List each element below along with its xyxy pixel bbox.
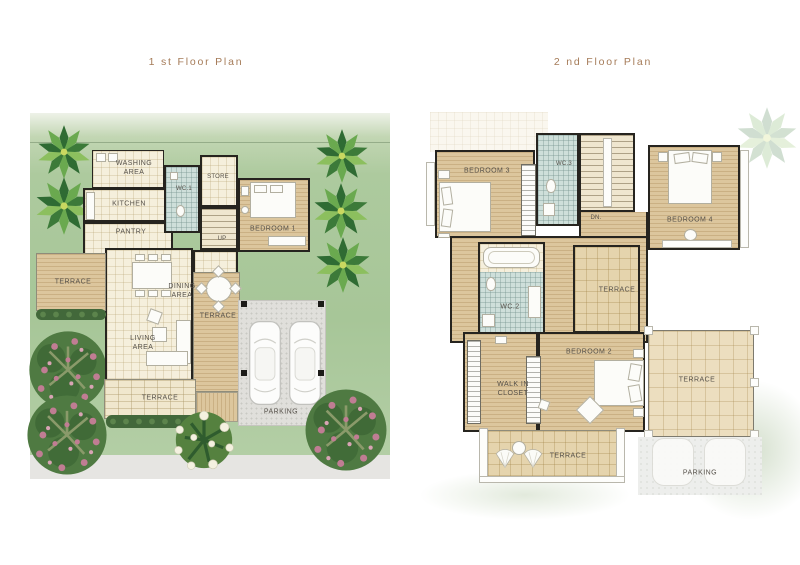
terrace-rail [616, 428, 625, 480]
nightstand-icon [241, 186, 249, 196]
chair-icon [135, 254, 145, 261]
wardrobe-icon [467, 340, 481, 424]
terrace-column [750, 326, 759, 335]
living-area-label: LIVING AREA [130, 334, 156, 352]
car-icon [247, 315, 283, 411]
pillow-icon [441, 208, 453, 227]
terrace-column [750, 378, 759, 387]
sofa-icon [146, 351, 188, 366]
chair-icon [161, 254, 171, 261]
pillow-icon [441, 186, 453, 205]
nightstand-icon [438, 170, 450, 179]
floor-plans-canvas: 1 st Floor Plan 2 nd Floor Plan [0, 0, 800, 565]
terrace-bottom2-label: TERRACE [550, 451, 587, 460]
first-floor-plan: WASHING AREA KITCHEN WC.1 STORE UP PANTR… [0, 0, 430, 565]
terrace-mid-label: TERRACE [200, 311, 237, 320]
carport-post [318, 301, 324, 307]
kitchen-label: KITCHEN [112, 199, 146, 208]
dining-area-label: DINING AREA [168, 282, 195, 300]
sink-icon [543, 203, 555, 216]
parking2-label: PARKING [683, 468, 717, 477]
tub-inner [488, 251, 535, 264]
up-label: UP [218, 236, 227, 244]
chair-icon [148, 290, 158, 297]
bench-icon [495, 336, 507, 344]
stairs-down-icon [579, 133, 635, 212]
bathtub-icon [483, 247, 540, 268]
bed-icon [668, 150, 712, 204]
flowering-tree-icon [302, 386, 390, 474]
palm-tree-icon [36, 124, 92, 180]
dining-table-icon [132, 262, 172, 289]
chair-icon [148, 254, 158, 261]
second-floor-plan: BEDROOM 3 WC.3 DN. BEDROOM 4 WC.2 TERRAC… [400, 0, 800, 565]
closet-shelf-icon [521, 164, 536, 236]
bedroom1-label: BEDROOM 1 [250, 224, 296, 233]
parking-area-2 [638, 437, 762, 495]
round-table-icon [206, 276, 232, 302]
room-wc3 [536, 133, 579, 226]
white-flower-bush-icon [172, 408, 236, 472]
pillow-icon [270, 185, 283, 193]
carport-post [318, 370, 324, 376]
walk-in-closet-label: WALK IN CLOSET [497, 380, 529, 398]
terrace-rail [479, 476, 625, 483]
car-icon [704, 438, 746, 486]
chair-icon [135, 290, 145, 297]
planter-ledge [740, 150, 749, 248]
washer-icon [96, 153, 106, 162]
palm-tree-icon [312, 182, 370, 240]
store-label: STORE [207, 174, 229, 182]
wc2-label: WC.2 [500, 302, 519, 311]
pillow-icon [691, 152, 708, 164]
wc1-label: WC.1 [176, 186, 192, 194]
nightstand-icon [438, 233, 450, 238]
flowering-tree-icon [24, 392, 110, 478]
wc3-label: WC.3 [556, 161, 572, 169]
carport-post [241, 301, 247, 307]
room-bedroom3 [435, 150, 535, 238]
pillow-icon [628, 384, 643, 403]
stool-icon [241, 206, 249, 214]
toilet-icon [546, 179, 556, 193]
terrace-rail [479, 428, 488, 480]
vanity-icon [528, 286, 541, 318]
bed-icon [250, 182, 296, 218]
window-ledge [662, 240, 732, 248]
car-icon [652, 438, 694, 486]
bed-icon [594, 360, 644, 406]
terrace-left-label: TERRACE [55, 277, 92, 286]
terrace-mid2-label: TERRACE [599, 285, 636, 294]
sink-icon [170, 172, 178, 180]
room-wc1 [164, 165, 200, 233]
stair-rail [603, 138, 612, 207]
bedroom3-label: BEDROOM 3 [464, 166, 510, 175]
washing-area-label: WASHING AREA [116, 159, 152, 177]
pantry-label: PANTRY [116, 227, 146, 236]
kitchen-counter-icon [86, 192, 95, 220]
terrace-bottom-label: TERRACE [142, 393, 179, 402]
pillow-icon [254, 185, 267, 193]
palm-tree-icon [314, 236, 372, 294]
toilet-icon [486, 277, 496, 291]
bedroom2-label: BEDROOM 2 [566, 347, 612, 356]
round-table-icon [512, 441, 526, 455]
shower-icon [482, 314, 495, 327]
hedge-icon [36, 309, 106, 320]
palm-tree-icon [314, 128, 370, 184]
pillow-icon [673, 152, 690, 164]
nightstand-icon [633, 408, 644, 417]
wardrobe-icon [268, 236, 306, 246]
toilet-icon [176, 205, 185, 217]
room-wc2 [478, 242, 545, 334]
planter-ledge [426, 162, 435, 226]
roof-tile-patch [430, 112, 548, 152]
bed-icon [439, 182, 491, 232]
room-bedroom4 [648, 145, 740, 250]
nightstand-icon [712, 152, 722, 162]
nightstand-icon [658, 152, 668, 162]
nightstand-icon [633, 349, 644, 358]
terrace-right2-label: TERRACE [679, 375, 716, 384]
pillow-icon [628, 363, 643, 382]
carport-post [241, 370, 247, 376]
parking-label: PARKING [264, 407, 298, 416]
bedroom4-label: BEDROOM 4 [667, 215, 713, 224]
terrace-column [644, 326, 653, 335]
dn-label: DN. [590, 215, 601, 223]
